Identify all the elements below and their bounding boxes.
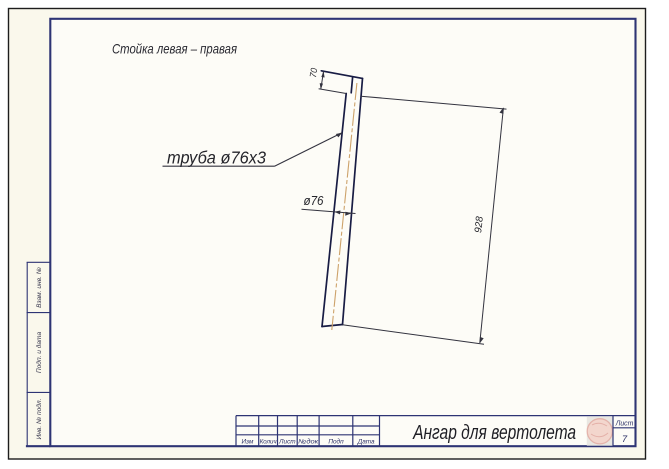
svg-text:ø76: ø76	[304, 194, 324, 208]
svg-text:Изм: Изм	[241, 439, 253, 446]
svg-text:Ангар для вертолета: Ангар для вертолета	[412, 422, 576, 444]
svg-text:7: 7	[622, 434, 628, 445]
svg-text:Подп: Подп	[328, 438, 344, 446]
svg-text:Лист: Лист	[615, 420, 634, 427]
svg-text:Взам. инв. №: Взам. инв. №	[36, 267, 43, 308]
svg-text:928: 928	[473, 215, 486, 233]
svg-text:труба ø76х3: труба ø76х3	[167, 148, 266, 168]
svg-text:Инв. № подл.: Инв. № подл.	[35, 398, 43, 439]
svg-text:Дата: Дата	[357, 439, 375, 446]
svg-text:Подп. и дата: Подп. и дата	[35, 332, 43, 374]
svg-text:Колич: Колич	[260, 439, 278, 446]
svg-text:№док: №док	[298, 438, 319, 446]
svg-text:Лист: Лист	[278, 439, 296, 446]
svg-text:Стойка левая – правая: Стойка левая – правая	[112, 41, 237, 57]
